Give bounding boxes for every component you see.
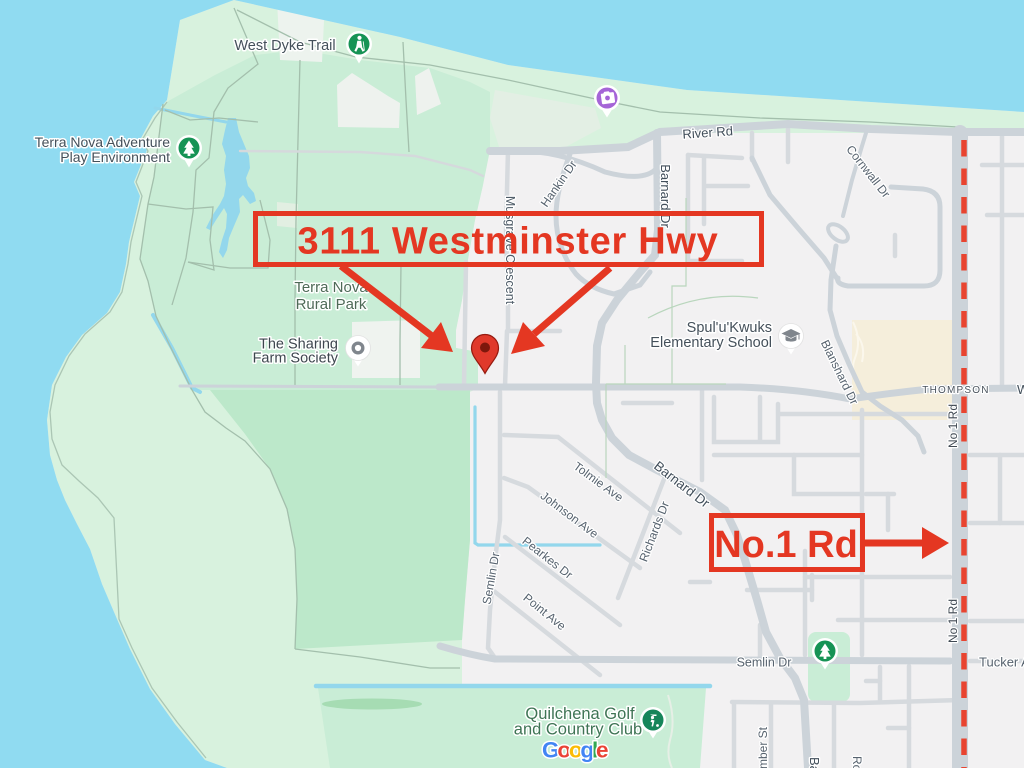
svg-text:Semlin Dr: Semlin Dr — [737, 656, 792, 670]
svg-text:W: W — [1017, 382, 1024, 397]
svg-text:West Dyke Trail: West Dyke Trail — [234, 38, 335, 54]
svg-text:Spul'u'Kwuks: Spul'u'Kwuks — [687, 320, 772, 336]
svg-text:No.1 Rd: No.1 Rd — [714, 524, 858, 566]
svg-text:mber St: mber St — [756, 726, 770, 768]
svg-text:No 1 Rd: No 1 Rd — [946, 599, 960, 643]
svg-text:THOMPSON: THOMPSON — [922, 385, 989, 396]
svg-text:Tucker Ave: Tucker Ave — [979, 655, 1024, 670]
svg-text:No 1 Rd: No 1 Rd — [946, 404, 960, 448]
svg-text:Play Environment: Play Environment — [60, 149, 170, 165]
svg-text:Ba: Ba — [807, 757, 822, 768]
svg-text:3111 Westminster Hwy: 3111 Westminster Hwy — [298, 221, 719, 263]
svg-text:Farm Society: Farm Society — [253, 351, 339, 367]
svg-text:Ro: Ro — [850, 756, 864, 768]
svg-text:Google: Google — [542, 738, 608, 763]
svg-text:Rural Park: Rural Park — [296, 296, 367, 313]
svg-text:Elementary School: Elementary School — [650, 335, 772, 351]
svg-text:and Country Club: and Country Club — [514, 721, 642, 739]
svg-text:Barnard Dr: Barnard Dr — [658, 164, 673, 228]
svg-text:Terra Nova Adventure: Terra Nova Adventure — [35, 134, 171, 150]
